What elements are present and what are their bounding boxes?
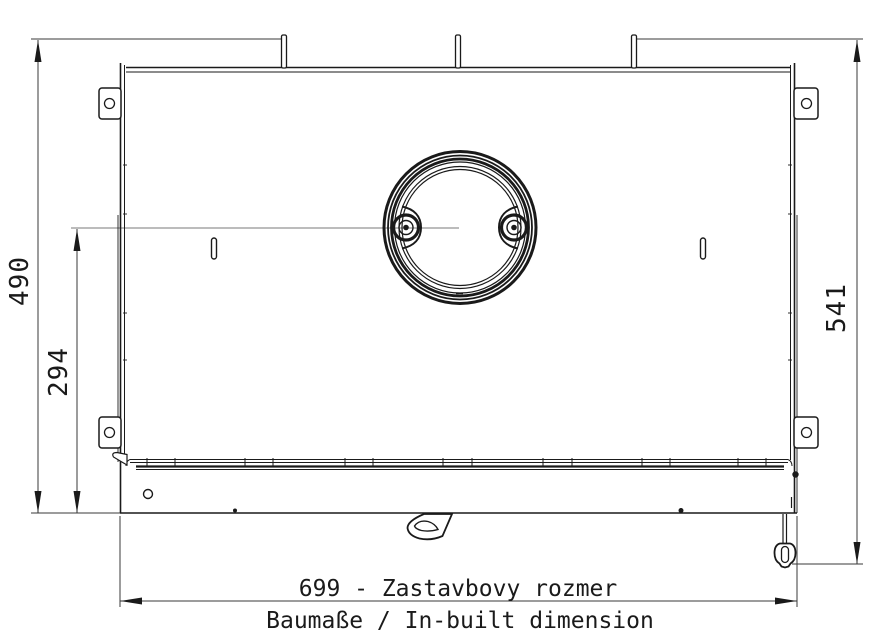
pull-pendant xyxy=(775,514,796,568)
dim-label-699: 699 - Zastavbovy rozmer xyxy=(299,576,618,602)
arrow-699-left xyxy=(120,598,142,605)
flue-bolt-left xyxy=(403,225,409,231)
dim-label-294: 294 xyxy=(44,347,74,397)
flue-lug-right xyxy=(499,207,527,249)
top-tab-right xyxy=(632,35,637,68)
plate-slots xyxy=(212,238,706,259)
bracket-hole-bottom-left xyxy=(105,428,115,438)
front-strip-rivet-left xyxy=(233,509,237,513)
dim-label-490: 490 xyxy=(5,256,35,306)
slot-right xyxy=(701,238,706,259)
mounting-brackets xyxy=(99,88,818,448)
wall-joint-marks xyxy=(123,165,792,360)
arrow-294-top xyxy=(74,229,81,251)
dimension-labels: 490 294 541 699 - Zastavbovy rozmer Baum… xyxy=(5,256,852,634)
technical-drawing: 490 294 541 699 - Zastavbovy rozmer Baum… xyxy=(0,0,892,643)
front-strip-right-pin xyxy=(792,471,798,477)
arrow-699-right xyxy=(775,598,797,605)
arrow-490-top xyxy=(35,40,42,62)
bracket-hole-top-right xyxy=(802,99,812,109)
arrow-294-bottom xyxy=(74,491,81,513)
dim-label-built-in: Baumaße / In-built dimension xyxy=(266,608,654,634)
top-tab-left xyxy=(282,35,287,68)
flue-bolt-right xyxy=(511,225,517,231)
flue-collar xyxy=(384,152,536,304)
top-tab-center xyxy=(456,35,461,68)
front-strip xyxy=(113,453,799,514)
front-strip-rivet-right xyxy=(679,508,684,513)
arrow-541-bottom xyxy=(854,542,861,564)
bracket-hole-bottom-right xyxy=(802,428,812,438)
slot-left xyxy=(212,238,217,259)
front-strip-hole xyxy=(144,490,153,499)
pendant-eye-slot xyxy=(782,547,789,563)
arrow-490-bottom xyxy=(35,491,42,513)
door-latch-handle xyxy=(408,514,453,539)
bracket-hole-top-left xyxy=(105,99,115,109)
dim-label-541: 541 xyxy=(822,283,852,333)
drawing-canvas: 490 294 541 699 - Zastavbovy rozmer Baum… xyxy=(0,0,892,643)
top-tabs xyxy=(282,35,637,68)
glass-band xyxy=(126,458,792,470)
arrow-541-top xyxy=(854,40,861,62)
